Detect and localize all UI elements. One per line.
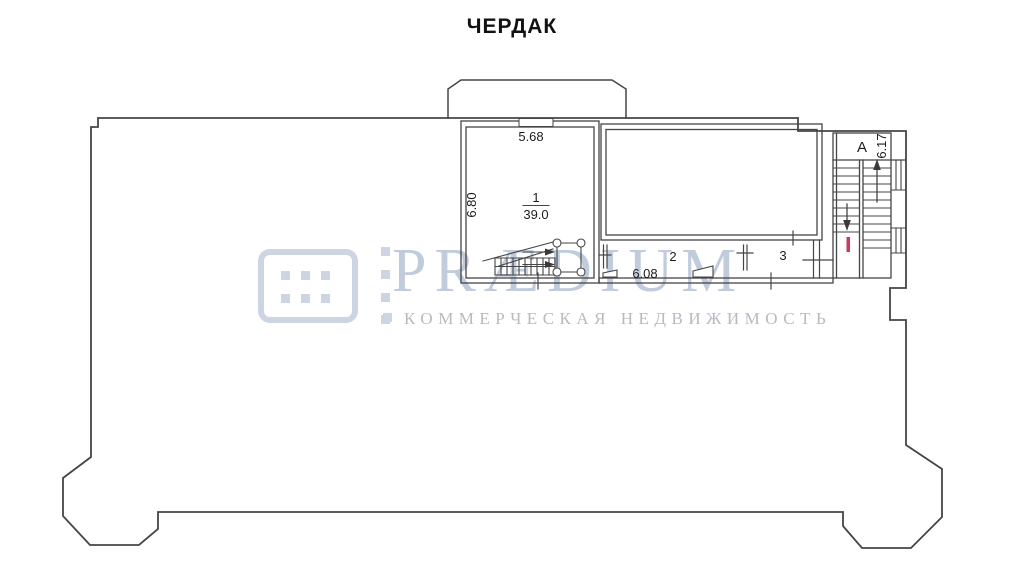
room-2-number: 2: [669, 249, 676, 264]
room-1-walls: [461, 121, 599, 283]
door-leafs: [603, 266, 713, 277]
stairwell-treads: [833, 168, 891, 248]
stair-landing: [553, 239, 585, 276]
stairwell-letter: A: [857, 139, 867, 156]
stairwell-window-bays: [891, 160, 906, 253]
stairwell-block: [833, 133, 906, 278]
upper-hall-walls: [601, 124, 822, 240]
room-1-area: 39.0: [523, 207, 548, 222]
room-1-stair: [483, 242, 555, 275]
room-1-window-opening: [519, 119, 553, 127]
floor-plan-page: ЧЕРДАК PRÆDIUM КОММЕРЧЕСКАЯ НЕДВИЖИМОСТЬ: [0, 0, 1024, 580]
attic-floor-plan: 5.68 6.80 1 39.0 2 6.08 3 A 6.17: [0, 0, 1024, 580]
stairwell-depth-dim: 6.17: [874, 133, 889, 158]
stairwell-arrowheads: [843, 159, 881, 231]
room-3-number: 3: [779, 248, 786, 263]
room-1-number: 1: [532, 190, 539, 205]
building-outline: [63, 118, 942, 548]
room-1-width-dim: 5.68: [518, 129, 543, 144]
entrance-mark: [847, 237, 851, 252]
roof-dormer: [448, 80, 626, 118]
room-2-width-dim: 6.08: [632, 266, 657, 281]
room-1-depth-dim: 6.80: [464, 192, 479, 217]
